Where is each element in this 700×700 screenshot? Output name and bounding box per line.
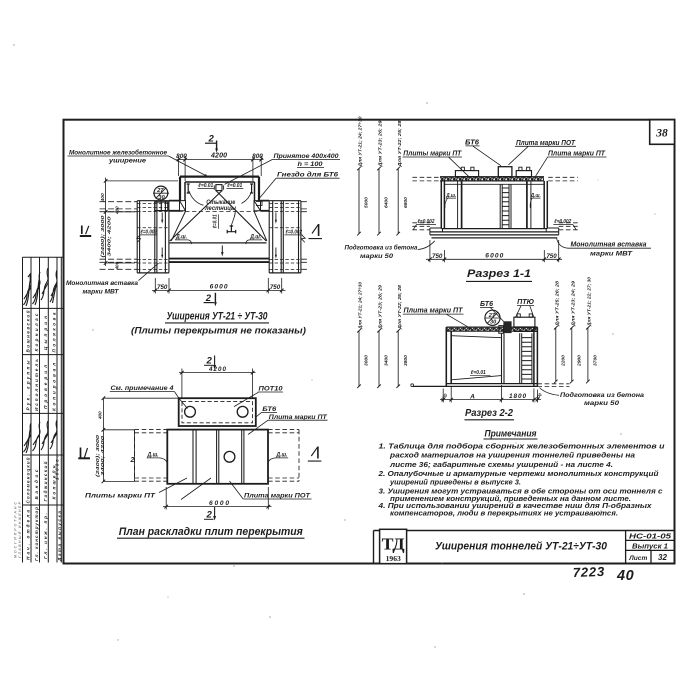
svg-text:уширений приведены в выпуске 3: уширений приведены в выпуске 3. <box>389 478 521 487</box>
svg-text:Разрез 1-1: Разрез 1-1 <box>467 268 531 280</box>
svg-text:2200: 2200 <box>560 355 566 367</box>
svg-text:Гл. конструктор: Гл. конструктор <box>34 507 39 561</box>
svg-text:Для УТ-22; 25; 28: Для УТ-22; 25; 28 <box>397 285 402 331</box>
svg-text:А: А <box>469 394 475 401</box>
svg-text:300: 300 <box>440 392 449 402</box>
svg-text:Лист: Лист <box>628 555 647 562</box>
svg-text:уширение: уширение <box>108 158 147 165</box>
svg-text:400: 400 <box>115 206 120 215</box>
svg-text:Примечания: Примечания <box>485 428 537 439</box>
svg-text:800: 800 <box>252 153 263 160</box>
svg-text:3800: 3800 <box>403 355 409 366</box>
svg-text:Рук. группы: Рук. группы <box>26 361 31 411</box>
svg-text:МОСГИПРОТРАНС: МОСГИПРОТРАНС <box>14 502 18 558</box>
svg-text:НС-01-05: НС-01-05 <box>629 532 672 541</box>
svg-text:Для УТ-25; 26; 28: Для УТ-25; 26; 28 <box>554 281 559 328</box>
svg-text:ПТЮ: ПТЮ <box>517 299 534 306</box>
svg-text:Монолитное железобетонное: Монолитное железобетонное <box>69 148 167 156</box>
svg-text:марки МВТ: марки МВТ <box>83 289 120 296</box>
svg-text:марки 50: марки 50 <box>584 400 620 407</box>
svg-text:БТ6: БТ6 <box>465 139 479 146</box>
svg-text:1800: 1800 <box>509 393 526 400</box>
svg-text:750: 750 <box>432 253 443 260</box>
svg-text:Дата выпуска: Дата выпуска <box>57 511 62 562</box>
svg-text:750: 750 <box>157 284 168 291</box>
svg-text:компенсаторов, люди в перекрыт: компенсаторов, люди в перекрытиях не уст… <box>390 508 618 517</box>
svg-text:ТД: ТД <box>382 535 406 554</box>
svg-text:2. Опалубочные и арматурные че: 2. Опалубочные и арматурные чертежи моно… <box>377 469 659 478</box>
svg-text:Гнездо для БТ6: Гнездо для БТ6 <box>277 171 339 179</box>
svg-text:Соломеницкий: Соломеницкий <box>25 457 31 503</box>
svg-text:Уширения УТ-21 ÷ УТ-30: Уширения УТ-21 ÷ УТ-30 <box>167 311 269 323</box>
svg-text:Полякова: Полякова <box>52 312 57 352</box>
svg-text:Подготовка из бетона: Подготовка из бетона <box>560 391 644 399</box>
svg-text:Нач. отдела: Нач. отдела <box>26 510 31 560</box>
svg-text:Для УТ-22; 25; 28: Для УТ-22; 25; 28 <box>397 120 402 168</box>
svg-text:h = 100: h = 100 <box>298 161 323 168</box>
svg-text:7223: 7223 <box>573 564 606 580</box>
svg-text:Подготовка из бетона: Подготовка из бетона <box>345 244 418 252</box>
svg-text:Плита марки ПОТ: Плита марки ПОТ <box>244 493 311 500</box>
svg-text:6000: 6000 <box>210 284 228 291</box>
svg-text:1963: 1963 <box>386 554 401 563</box>
svg-text:Плита марки ПТ: Плита марки ПТ <box>548 151 606 158</box>
svg-text:Годжинский: Годжинский <box>42 461 48 501</box>
svg-text:БТ6: БТ6 <box>262 406 277 413</box>
svg-text:ℓ=0.01: ℓ=0.01 <box>213 214 219 229</box>
svg-text:3400; 4200: 3400; 4200 <box>100 435 105 476</box>
svg-text:Гл. инж. пр.: Гл. инж. пр. <box>43 513 48 559</box>
svg-text:6400: 6400 <box>384 197 390 208</box>
svg-text:30: 30 <box>158 195 165 201</box>
svg-text:2: 2 <box>130 457 135 464</box>
svg-text:Плиты марки ПТ: Плиты марки ПТ <box>85 493 156 500</box>
svg-text:3000: 3000 <box>364 355 370 366</box>
svg-text:Корнилас: Корнилас <box>34 313 39 351</box>
svg-text:32: 32 <box>658 553 667 562</box>
svg-text:Для УТ-21; 24; 27÷30: Для УТ-21; 24; 27÷30 <box>358 116 363 167</box>
svg-text:Монолитная вставка: Монолитная вставка <box>66 280 138 287</box>
svg-text:Бандос: Бандос <box>34 469 39 499</box>
svg-text:Для УТ-23; 26; 29: Для УТ-23; 26; 29 <box>378 120 383 168</box>
svg-text:Плиты марки ПТ: Плиты марки ПТ <box>403 151 462 158</box>
svg-text:Монолитная вставка: Монолитная вставка <box>571 242 647 249</box>
svg-text:марки 50: марки 50 <box>360 253 394 260</box>
svg-text:6800: 6800 <box>403 197 409 208</box>
svg-text:750: 750 <box>546 253 557 260</box>
svg-text:6000: 6000 <box>485 253 503 260</box>
svg-text:Для УТ-21; 24; 27÷30: Для УТ-21; 24; 27÷30 <box>358 282 363 330</box>
svg-text:марки МВТ: марки МВТ <box>590 251 633 258</box>
svg-text:2900: 2900 <box>576 355 582 367</box>
svg-text:Для УТ-23; 26; 29: Для УТ-23; 26; 29 <box>378 285 383 331</box>
svg-text:Плита марки ПОТ: Плита марки ПОТ <box>516 140 576 147</box>
svg-text:300: 300 <box>534 392 543 402</box>
svg-text:Для УТ-23; 24; 29: Для УТ-23; 24; 29 <box>570 281 575 328</box>
svg-text:1. Таблица для подбора сбор: 1. Таблица для подбора сборных железобет… <box>379 442 666 451</box>
svg-text:Принятое 400х400: Принятое 400х400 <box>274 153 339 160</box>
svg-text:4200: 4200 <box>208 366 227 373</box>
svg-text:Плита марки ПТ: Плита марки ПТ <box>404 308 464 315</box>
svg-text:30: 30 <box>490 320 497 326</box>
svg-text:6000: 6000 <box>209 500 229 507</box>
svg-text:Вишневский: Вишневский <box>25 310 31 352</box>
svg-text:(Плиты перекрытия не показаны): (Плиты перекрытия не показаны) <box>131 326 306 337</box>
svg-text:Уширения тоннелей УТ-21÷УТ-30: Уширения тоннелей УТ-21÷УТ-30 <box>435 540 607 552</box>
svg-text:800: 800 <box>176 153 187 160</box>
svg-text:3400: 3400 <box>384 355 390 366</box>
svg-text:Проверил: Проверил <box>43 365 48 409</box>
svg-text:БТ6: БТ6 <box>480 301 493 308</box>
svg-text:ГЛАВНЫЙ ИНЖЕНЕР: ГЛАВНЫЙ ИНЖЕНЕР <box>18 501 22 558</box>
svg-text:4200: 4200 <box>210 153 227 160</box>
svg-text:ПОТ10: ПОТ10 <box>259 386 284 393</box>
svg-text:Копировал: Копировал <box>52 363 57 411</box>
svg-text:3400; 4200: 3400; 4200 <box>106 216 111 257</box>
svg-text:Цыприн: Цыприн <box>43 316 48 350</box>
svg-text:Для УТ-21; 22; 27; 30: Для УТ-21; 22; 27; 30 <box>587 277 592 327</box>
svg-text:400: 400 <box>100 193 106 202</box>
svg-text:листе 36; габаритные схемы уши: листе 36; габаритные схемы уширений - на… <box>389 460 613 469</box>
svg-text:400: 400 <box>115 261 120 270</box>
svg-text:План раскладки плит перекры: План раскладки плит перекрытия <box>119 526 304 538</box>
svg-text:См. примечание 4: См. примечание 4 <box>111 385 174 392</box>
svg-text:расход материалов на уширения: расход материалов на уширения тоннелей п… <box>389 451 635 460</box>
svg-text:38: 38 <box>655 128 668 140</box>
svg-text:40: 40 <box>616 568 634 584</box>
svg-text:3700: 3700 <box>593 355 599 366</box>
svg-text:750: 750 <box>270 284 281 291</box>
svg-text:5000: 5000 <box>364 197 370 208</box>
svg-text:Выпуск 1: Выпуск 1 <box>632 542 668 551</box>
svg-text:400: 400 <box>98 411 103 420</box>
svg-text:Разрез 2-2: Разрез 2-2 <box>465 408 513 419</box>
svg-text:(2400); 3000: (2400); 3000 <box>100 215 105 258</box>
svg-text:Исполнитель: Исполнитель <box>34 359 39 411</box>
